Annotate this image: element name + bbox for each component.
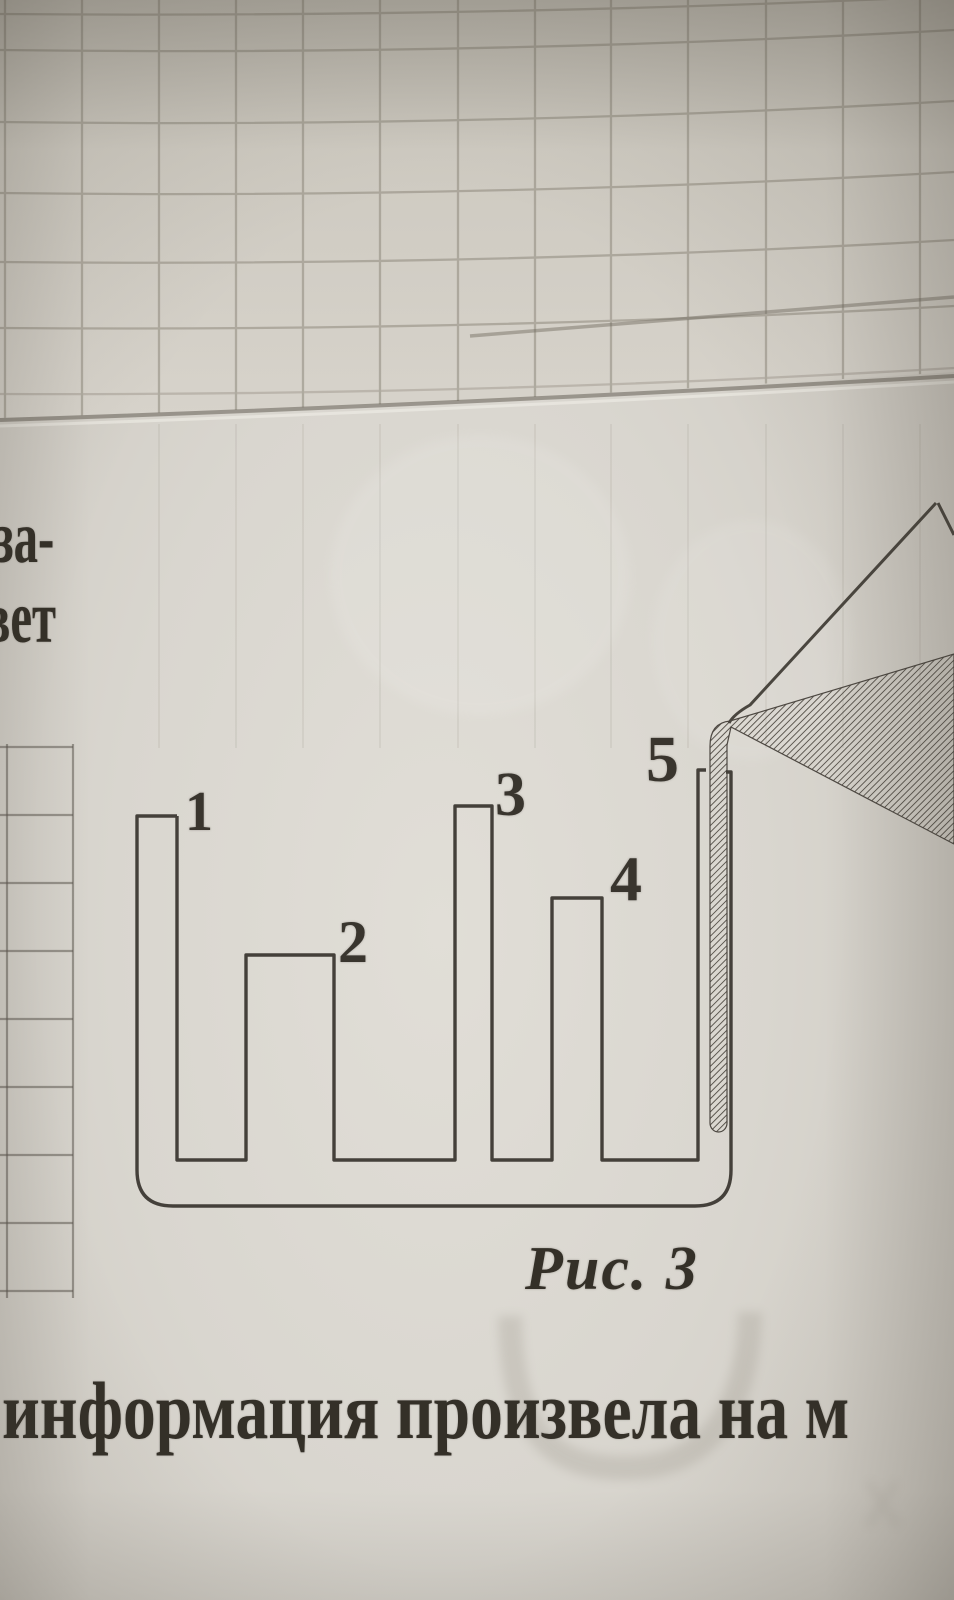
grid-paper-sheet <box>0 0 954 420</box>
tube-label-2: 2 <box>338 908 368 977</box>
tube-label-3: 3 <box>495 760 526 831</box>
tube-label-5: 5 <box>646 722 679 798</box>
tube-label-4: 4 <box>610 842 642 916</box>
margin-text-fragment-1: за- <box>0 496 54 581</box>
bottom-text-fragment: информация произвела на м <box>2 1364 849 1458</box>
vessel-inner-walls <box>177 770 706 1160</box>
page-ghost-marks <box>330 435 898 1526</box>
page-artwork <box>0 0 954 1600</box>
water-stream-hatch <box>710 654 954 1132</box>
vessel-outer-wall <box>137 772 731 1206</box>
margin-text-fragment-2: вет <box>0 576 56 661</box>
tube-label-1: 1 <box>185 780 213 844</box>
figure-caption: Рис. 3 <box>525 1234 699 1305</box>
funnel-right-outline <box>938 503 954 535</box>
textbook-page-photo: 1 2 3 4 5 Рис. 3 за- вет информация прои… <box>0 0 954 1600</box>
answer-grid-strip <box>0 744 73 1298</box>
